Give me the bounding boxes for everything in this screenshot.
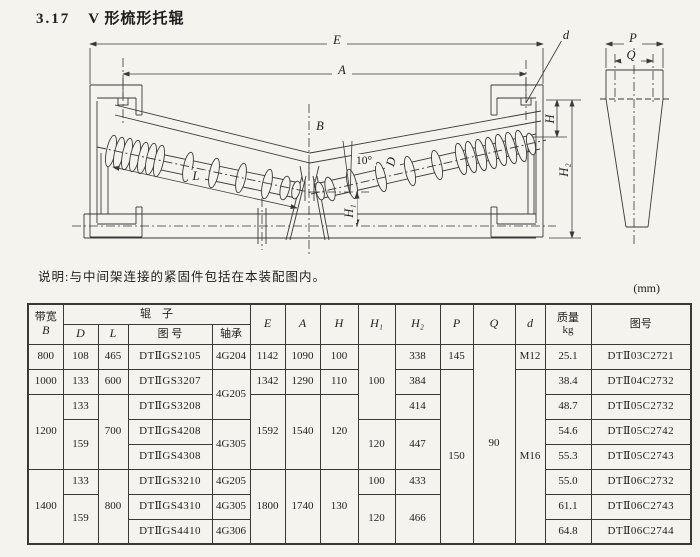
scanned-handbook-page: 3.17V 形梳形托辊	[0, 0, 700, 557]
col-header-L: L	[98, 324, 128, 344]
col-header-H2: H₂	[395, 304, 440, 344]
cell: 133	[63, 394, 98, 419]
cell: 1540	[285, 394, 320, 469]
unit-label: (mm)	[633, 281, 660, 296]
dim-label-H1: H₁	[342, 204, 356, 218]
col-header-roller-fig: 图 号	[128, 324, 212, 344]
cell: 48.7	[545, 394, 591, 419]
cell: 100	[358, 344, 395, 419]
technical-drawing: E A B L D 10° H H₁ H₂ d P Q	[0, 20, 700, 268]
dim-label-L: L	[192, 169, 200, 183]
col-header-roller-group: 辊 子	[63, 304, 250, 324]
table-row: 159DTⅡGS43104G30512046661.1DTⅡ06C2743	[28, 494, 691, 519]
cell: 64.8	[545, 519, 591, 544]
cell: 25.1	[545, 344, 591, 369]
cell: 110	[320, 369, 358, 394]
cell: DTⅡ06C2744	[591, 519, 691, 544]
cell: DTⅡGS2105	[128, 344, 212, 369]
cell: DTⅡ06C2732	[591, 469, 691, 494]
cell: 133	[63, 369, 98, 394]
cell: 1142	[250, 344, 285, 369]
cell: 1090	[285, 344, 320, 369]
cell: 120	[358, 419, 395, 469]
cell: DTⅡ05C2732	[591, 394, 691, 419]
cell: DTⅡGS4208	[128, 419, 212, 444]
cell: 384	[395, 369, 440, 394]
cell: DTⅡGS4310	[128, 494, 212, 519]
cell: 4G205	[212, 469, 250, 494]
cell: DTⅡGS4410	[128, 519, 212, 544]
cell: 1400	[28, 469, 63, 544]
cell: 1200	[28, 394, 63, 469]
cell: 108	[63, 344, 98, 369]
cell: 38.4	[545, 369, 591, 394]
cell: 4G306	[212, 519, 250, 544]
cell: 1740	[285, 469, 320, 544]
cell: 338	[395, 344, 440, 369]
col-header-figno: 图号	[591, 304, 691, 344]
col-header-D: D	[63, 324, 98, 344]
angle-label: 10°	[356, 155, 373, 167]
cell: DTⅡGS4308	[128, 444, 212, 469]
col-header-E: E	[250, 304, 285, 344]
col-header-d: d	[515, 304, 545, 344]
mass-label: 质量	[546, 312, 591, 325]
cell: 133	[63, 469, 98, 494]
cell: DTⅡ05C2742	[591, 419, 691, 444]
label-masks	[188, 29, 642, 223]
cell: 465	[98, 344, 128, 369]
cell: DTⅡ03C2721	[591, 344, 691, 369]
cell: 61.1	[545, 494, 591, 519]
dim-label-B: B	[316, 119, 324, 133]
cell: DTⅡGS3207	[128, 369, 212, 394]
cell: 800	[28, 344, 63, 369]
cell: DTⅡ04C2732	[591, 369, 691, 394]
cell: DTⅡGS3210	[128, 469, 212, 494]
spec-table: 带宽 B 辊 子 E A H H₁ H₂ P Q d 质量 kg 图号 D L …	[27, 303, 692, 545]
dim-label-E: E	[332, 33, 341, 47]
cell: 150	[440, 369, 473, 544]
col-header-H: H	[320, 304, 358, 344]
cell: 466	[395, 494, 440, 544]
cell: DTⅡGS3208	[128, 394, 212, 419]
table-row: 159DTⅡGS42084G30512044754.6DTⅡ05C2742	[28, 419, 691, 444]
cell: 159	[63, 494, 98, 544]
col-header-bandwidth: 带宽 B	[28, 304, 63, 344]
dim-label-Q: Q	[626, 48, 635, 62]
cell: 447	[395, 419, 440, 469]
cell: 100	[358, 469, 395, 494]
cell: 120	[358, 494, 395, 544]
roller-left	[97, 134, 313, 200]
dim-label-H2: H₂	[557, 163, 571, 178]
cell: 130	[320, 469, 358, 544]
cell: 433	[395, 469, 440, 494]
cell: 100	[320, 344, 358, 369]
cell: M12	[515, 344, 545, 369]
cell: DTⅡ05C2743	[591, 444, 691, 469]
cell: 4G205	[212, 369, 250, 419]
dim-label-H: H	[543, 114, 557, 125]
cell: 4G204	[212, 344, 250, 369]
structure-lines	[84, 70, 669, 244]
dim-label-A: A	[337, 63, 346, 77]
note-text: 说明:与中间架连接的紧固件包括在本装配图内。	[38, 266, 326, 285]
cell: 4G305	[212, 494, 250, 519]
col-header-P: P	[440, 304, 473, 344]
cell: M16	[515, 369, 545, 544]
table-row: 800108465DTⅡGS21054G20411421090100100338…	[28, 344, 691, 369]
mass-unit-label: kg	[546, 324, 591, 337]
dim-label-P: P	[628, 31, 637, 45]
col-header-mass: 质量 kg	[545, 304, 591, 344]
cell: 55.0	[545, 469, 591, 494]
col-header-Q: Q	[473, 304, 515, 344]
cell: 120	[320, 394, 358, 469]
cell: 159	[63, 419, 98, 469]
dim-label-d: d	[563, 28, 570, 42]
cell: 1592	[250, 394, 285, 469]
cell: DTⅡ06C2743	[591, 494, 691, 519]
col-header-bearing: 轴承	[212, 324, 250, 344]
cell: 54.6	[545, 419, 591, 444]
cell: 600	[98, 369, 128, 394]
cell: 414	[395, 394, 440, 419]
table-row: 1400133800DTⅡGS32104G2051800174013010043…	[28, 469, 691, 494]
cell: 4G305	[212, 419, 250, 469]
col-header-H1: H₁	[358, 304, 395, 344]
col-header-A: A	[285, 304, 320, 344]
cell: 700	[98, 394, 128, 469]
dimension-lines	[90, 40, 663, 238]
cell: 1000	[28, 369, 63, 394]
cell: 800	[98, 469, 128, 544]
cell: 145	[440, 344, 473, 369]
cell: 90	[473, 344, 515, 544]
cell: 1290	[285, 369, 320, 394]
cell: 55.3	[545, 444, 591, 469]
cell: 1800	[250, 469, 285, 544]
bandwidth-label: 带宽	[29, 311, 63, 324]
bandwidth-symbol: B	[29, 324, 63, 338]
cell: 1342	[250, 369, 285, 394]
